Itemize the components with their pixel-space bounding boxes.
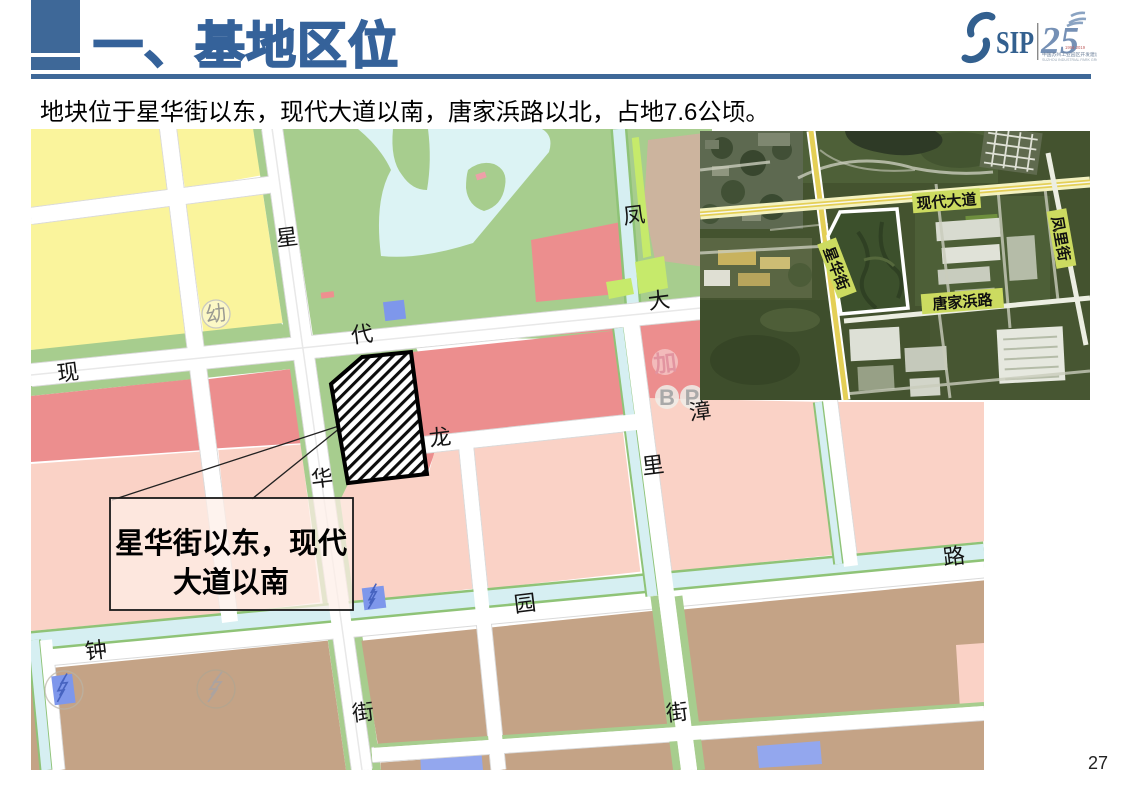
svg-text:星: 星 (275, 224, 300, 251)
svg-text:街: 街 (351, 699, 376, 726)
svg-text:园: 园 (513, 590, 538, 617)
svg-text:大: 大 (647, 287, 672, 314)
svg-text:大道以南: 大道以南 (173, 566, 289, 599)
svg-text:里: 里 (641, 452, 666, 479)
svg-text:漳: 漳 (688, 398, 713, 425)
svg-text:代: 代 (350, 321, 375, 348)
svg-text:路: 路 (942, 543, 967, 570)
svg-text:钟: 钟 (84, 637, 109, 664)
svg-text:凤: 凤 (622, 202, 647, 229)
svg-text:华: 华 (310, 465, 335, 492)
svg-text:加: 加 (651, 349, 678, 378)
svg-text:星华街以东，现代: 星华街以东，现代 (115, 526, 347, 560)
svg-text:现: 现 (56, 359, 81, 386)
svg-text:龙: 龙 (428, 424, 453, 451)
svg-text:幼: 幼 (204, 302, 228, 327)
svg-text:B: B (659, 385, 675, 410)
svg-text:街: 街 (665, 699, 690, 726)
